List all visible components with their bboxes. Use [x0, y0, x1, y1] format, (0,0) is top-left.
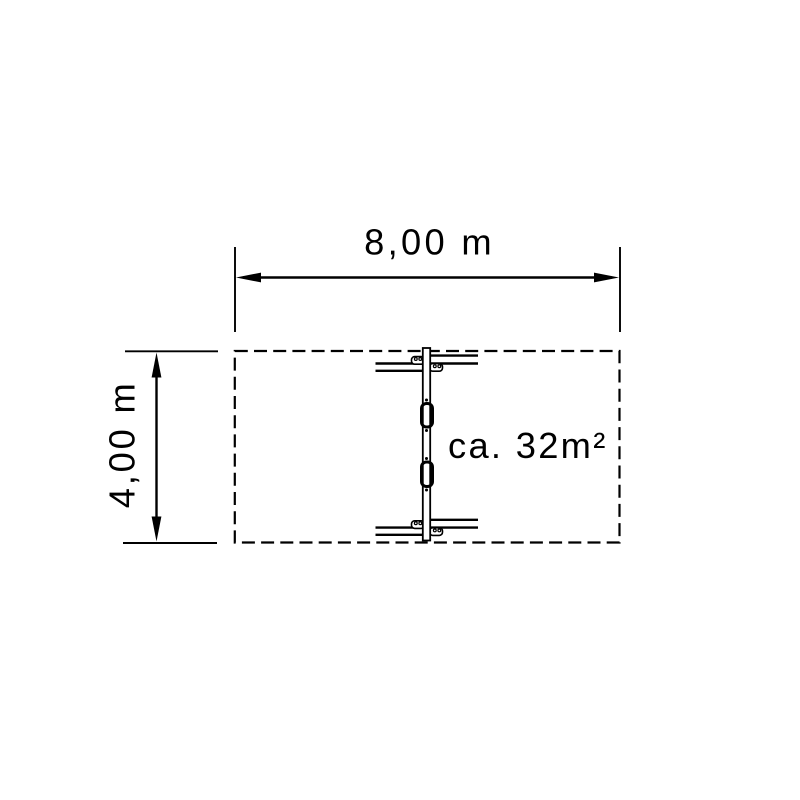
svg-text:8,00 m: 8,00 m	[364, 222, 495, 263]
svg-text:4,00 m: 4,00 m	[102, 381, 143, 509]
svg-text:ca. 32m²: ca. 32m²	[448, 425, 608, 466]
